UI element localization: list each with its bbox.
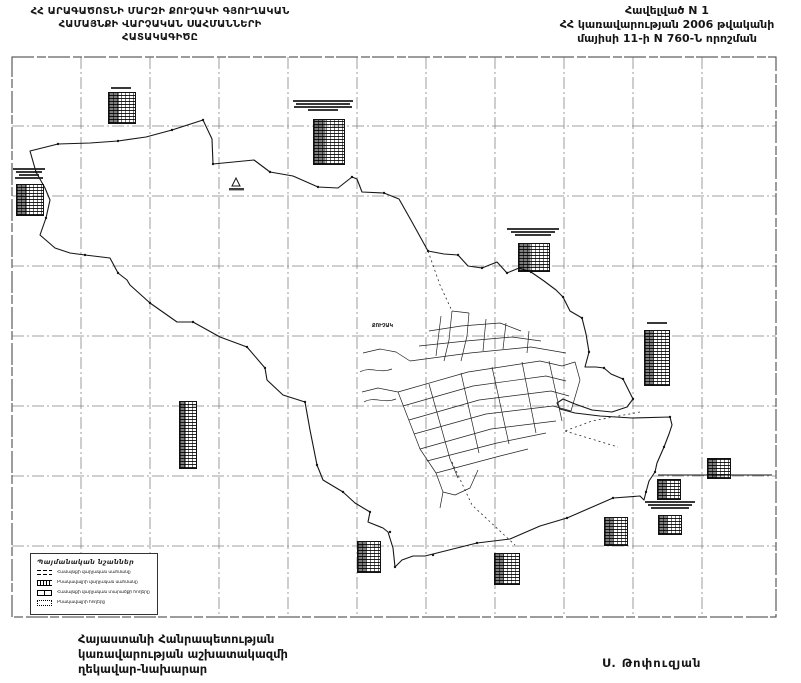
peak-triangle-icon <box>229 178 244 190</box>
land-table-caption <box>645 322 669 325</box>
legend-item: Համայնքի վարչական տարածքի հողերը <box>37 589 152 596</box>
legend-item-label: Բնակավայրի հողերը <box>57 600 105 605</box>
legend-item-label: Համայնքի վարչական տարածքի հողերը <box>57 590 150 595</box>
land-table <box>179 401 197 469</box>
signatory-title-line1: Հայաստանի Հանրապետության <box>78 632 398 647</box>
area-box-icon <box>37 590 52 596</box>
legend-item: Բնակավայրի հողերը <box>37 599 152 606</box>
land-table <box>657 479 681 500</box>
legend-item: Բնակավայրի վարչական սահմանը <box>37 579 152 586</box>
legend-box: Պայմանական նշաններ Համայնքի վարչական սահ… <box>30 553 158 615</box>
land-table <box>604 517 628 546</box>
land-table-caption <box>290 100 356 112</box>
land-table <box>518 243 550 272</box>
dotted-box-icon <box>37 600 52 606</box>
land-table <box>357 541 381 573</box>
internal-boundary-lines <box>428 251 640 545</box>
land-table-caption <box>644 501 696 510</box>
boundary-line-icon <box>37 570 52 575</box>
land-table <box>707 458 731 479</box>
land-table <box>108 92 136 124</box>
land-table <box>658 515 682 535</box>
signatory-title-line3: ղեկավար-նախարար <box>78 662 398 677</box>
land-table-caption <box>110 87 132 90</box>
land-table-caption <box>505 228 561 237</box>
land-table-caption <box>12 168 46 180</box>
land-table <box>313 119 345 165</box>
hatched-line-icon <box>37 580 52 586</box>
land-table <box>16 184 44 216</box>
signatory-name: Ս. Թոփուզյան <box>602 656 701 670</box>
land-table <box>644 330 670 386</box>
legend-item-label: Համայնքի վարչական սահմանը <box>57 570 131 575</box>
legend-item-label: Բնակավայրի վարչական սահմանը <box>57 580 138 585</box>
settlement-street-network <box>360 311 580 508</box>
legend-title: Պայմանական նշաններ <box>37 558 152 566</box>
legend-item: Համայնքի վարչական սահմանը <box>37 569 152 576</box>
signatory-title-line2: կառավարության աշխատակազմի <box>78 647 398 662</box>
village-label: ՔՈՒՉԱԿ <box>372 323 393 329</box>
land-table <box>494 553 520 585</box>
signatory-title: Հայաստանի Հանրապետության կառավարության ա… <box>78 632 398 678</box>
